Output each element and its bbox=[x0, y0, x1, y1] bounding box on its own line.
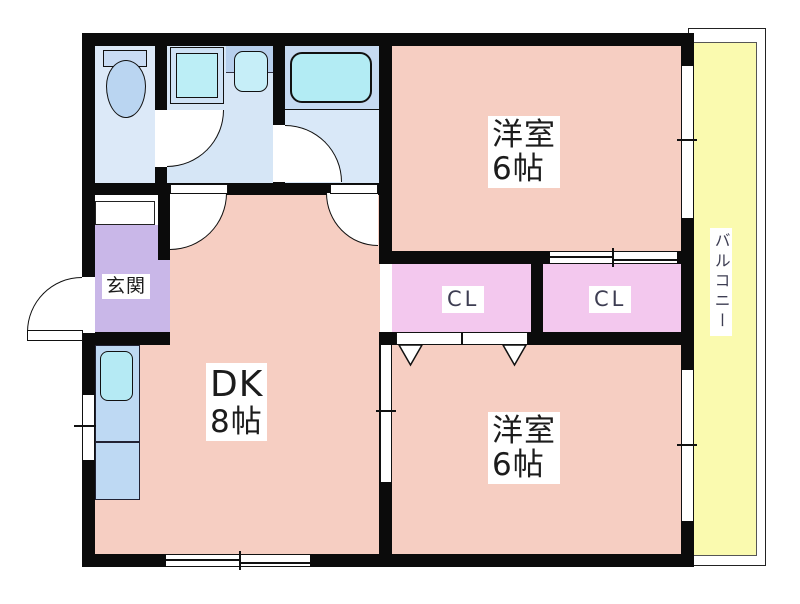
wall-genkan-right bbox=[158, 183, 170, 260]
window-bottom-rail-1 bbox=[166, 559, 241, 561]
washing-machine bbox=[176, 53, 218, 98]
label-western-room-top: 洋室 6帖 bbox=[488, 116, 560, 188]
dk-right-door-leaf bbox=[330, 184, 378, 194]
bath-door-gap bbox=[273, 125, 285, 182]
window-bottom bbox=[166, 554, 310, 567]
window-bottom-rail-2 bbox=[240, 562, 310, 564]
dk-size: 8帖 bbox=[210, 405, 263, 439]
window-right-top-tick bbox=[677, 139, 697, 141]
bathtub bbox=[290, 52, 372, 103]
window-left bbox=[82, 395, 95, 460]
entrance-door-leaf bbox=[27, 330, 83, 341]
entrance-door-gap bbox=[82, 277, 95, 333]
window-bottom-tick bbox=[239, 551, 241, 570]
window-right-bottom-tick bbox=[677, 444, 697, 446]
wall-closet-mid bbox=[531, 251, 543, 345]
label-genkan: 玄関 bbox=[102, 274, 150, 299]
closet-right-slide-rail-2 bbox=[613, 259, 677, 261]
closet-right-slide-rail-1 bbox=[550, 256, 614, 258]
western-room-bottom-name: 洋室 bbox=[492, 414, 556, 448]
western-room-bottom-size: 6帖 bbox=[492, 448, 556, 482]
label-closet-left: CL bbox=[442, 286, 484, 313]
toilet-door-gap bbox=[155, 110, 167, 167]
wall-genkan-bottom bbox=[95, 332, 170, 345]
label-western-room-bottom: 洋室 6帖 bbox=[488, 412, 560, 484]
closet-right-slide-tick bbox=[612, 248, 614, 267]
dk-name: DK bbox=[210, 365, 263, 405]
western-room-top-name: 洋室 bbox=[492, 118, 556, 152]
folding-door-triangles bbox=[392, 344, 532, 368]
wash-basin bbox=[234, 51, 268, 92]
kitchen-counter-divider bbox=[95, 441, 140, 443]
wall-bath-right bbox=[379, 33, 392, 264]
floor-plan: 洋室 6帖 洋室 6帖 DK 8帖 CL CL 玄関 バルコニー bbox=[0, 0, 800, 604]
genkan-floor-ext bbox=[158, 260, 170, 332]
entry-step bbox=[95, 201, 155, 225]
label-closet-right: CL bbox=[589, 286, 631, 313]
dk-bottomroom-slide bbox=[380, 345, 392, 482]
dk-left-door-leaf bbox=[170, 184, 228, 194]
entrance-door-arc bbox=[27, 277, 82, 332]
label-balcony: バルコニー bbox=[710, 228, 732, 336]
western-room-top-size: 6帖 bbox=[492, 152, 556, 186]
label-dk: DK 8帖 bbox=[206, 363, 267, 441]
window-left-tick bbox=[74, 425, 96, 427]
kitchen-sink bbox=[100, 351, 133, 401]
window-right-top bbox=[681, 66, 694, 218]
dk-bottomroom-slide-tick bbox=[376, 410, 396, 412]
